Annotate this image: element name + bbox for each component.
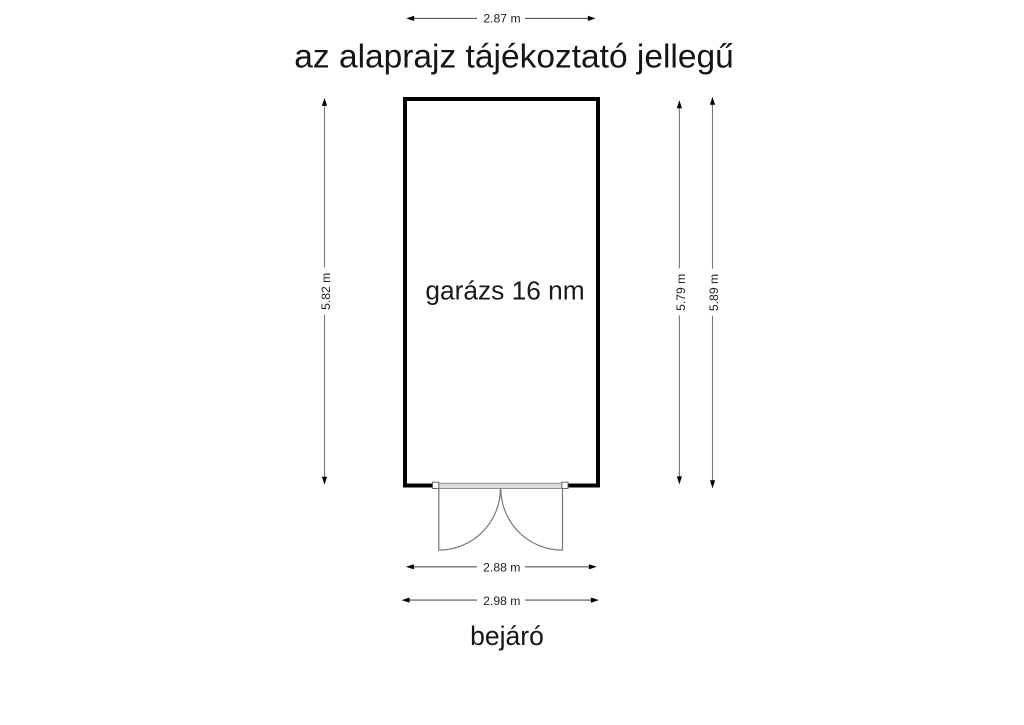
svg-text:bejáró: bejáró [470, 621, 544, 651]
svg-text:az alaprajz tájékoztató jelleg: az alaprajz tájékoztató jellegű [294, 39, 734, 76]
svg-text:5.89 m: 5.89 m [707, 274, 721, 311]
svg-text:2.98 m: 2.98 m [483, 594, 520, 608]
svg-text:2.88 m: 2.88 m [483, 561, 520, 575]
svg-text:5.82 m: 5.82 m [319, 273, 333, 310]
svg-text:2.87 m: 2.87 m [483, 11, 520, 25]
svg-text:garázs 16 nm: garázs 16 nm [425, 276, 584, 306]
svg-text:5.79 m: 5.79 m [674, 274, 688, 311]
